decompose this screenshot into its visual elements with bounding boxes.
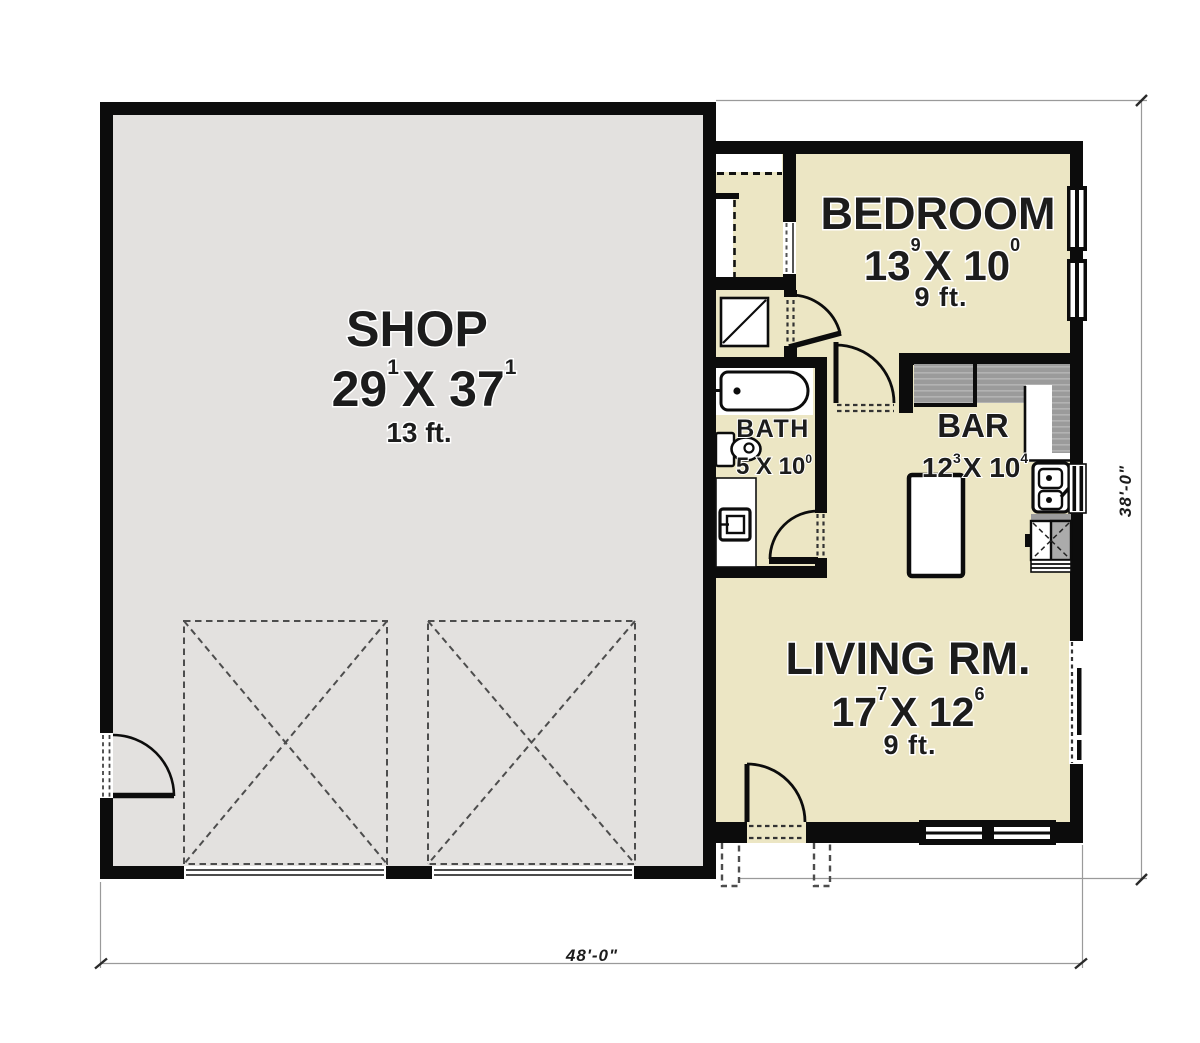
svg-text:SHOP: SHOP — [346, 301, 488, 357]
svg-text:BEDROOM: BEDROOM — [821, 188, 1056, 239]
svg-text:9 ft.: 9 ft. — [883, 730, 936, 760]
svg-text:139X 100: 139X 100 — [864, 235, 1020, 289]
svg-text:177X 126: 177X 126 — [832, 684, 985, 735]
svg-text:5 X 100: 5 X 100 — [736, 452, 812, 480]
svg-text:48'-0": 48'-0" — [565, 946, 618, 965]
svg-text:9 ft.: 9 ft. — [914, 282, 967, 312]
svg-text:BAR: BAR — [937, 407, 1009, 444]
svg-text:123X 104: 123X 104 — [922, 450, 1029, 483]
svg-text:38'-0": 38'-0" — [1116, 465, 1135, 517]
svg-text:13 ft.: 13 ft. — [386, 417, 451, 448]
svg-text:291X 371: 291X 371 — [332, 356, 517, 417]
svg-text:BATH: BATH — [736, 415, 810, 443]
svg-text:LIVING RM.: LIVING RM. — [786, 633, 1031, 684]
